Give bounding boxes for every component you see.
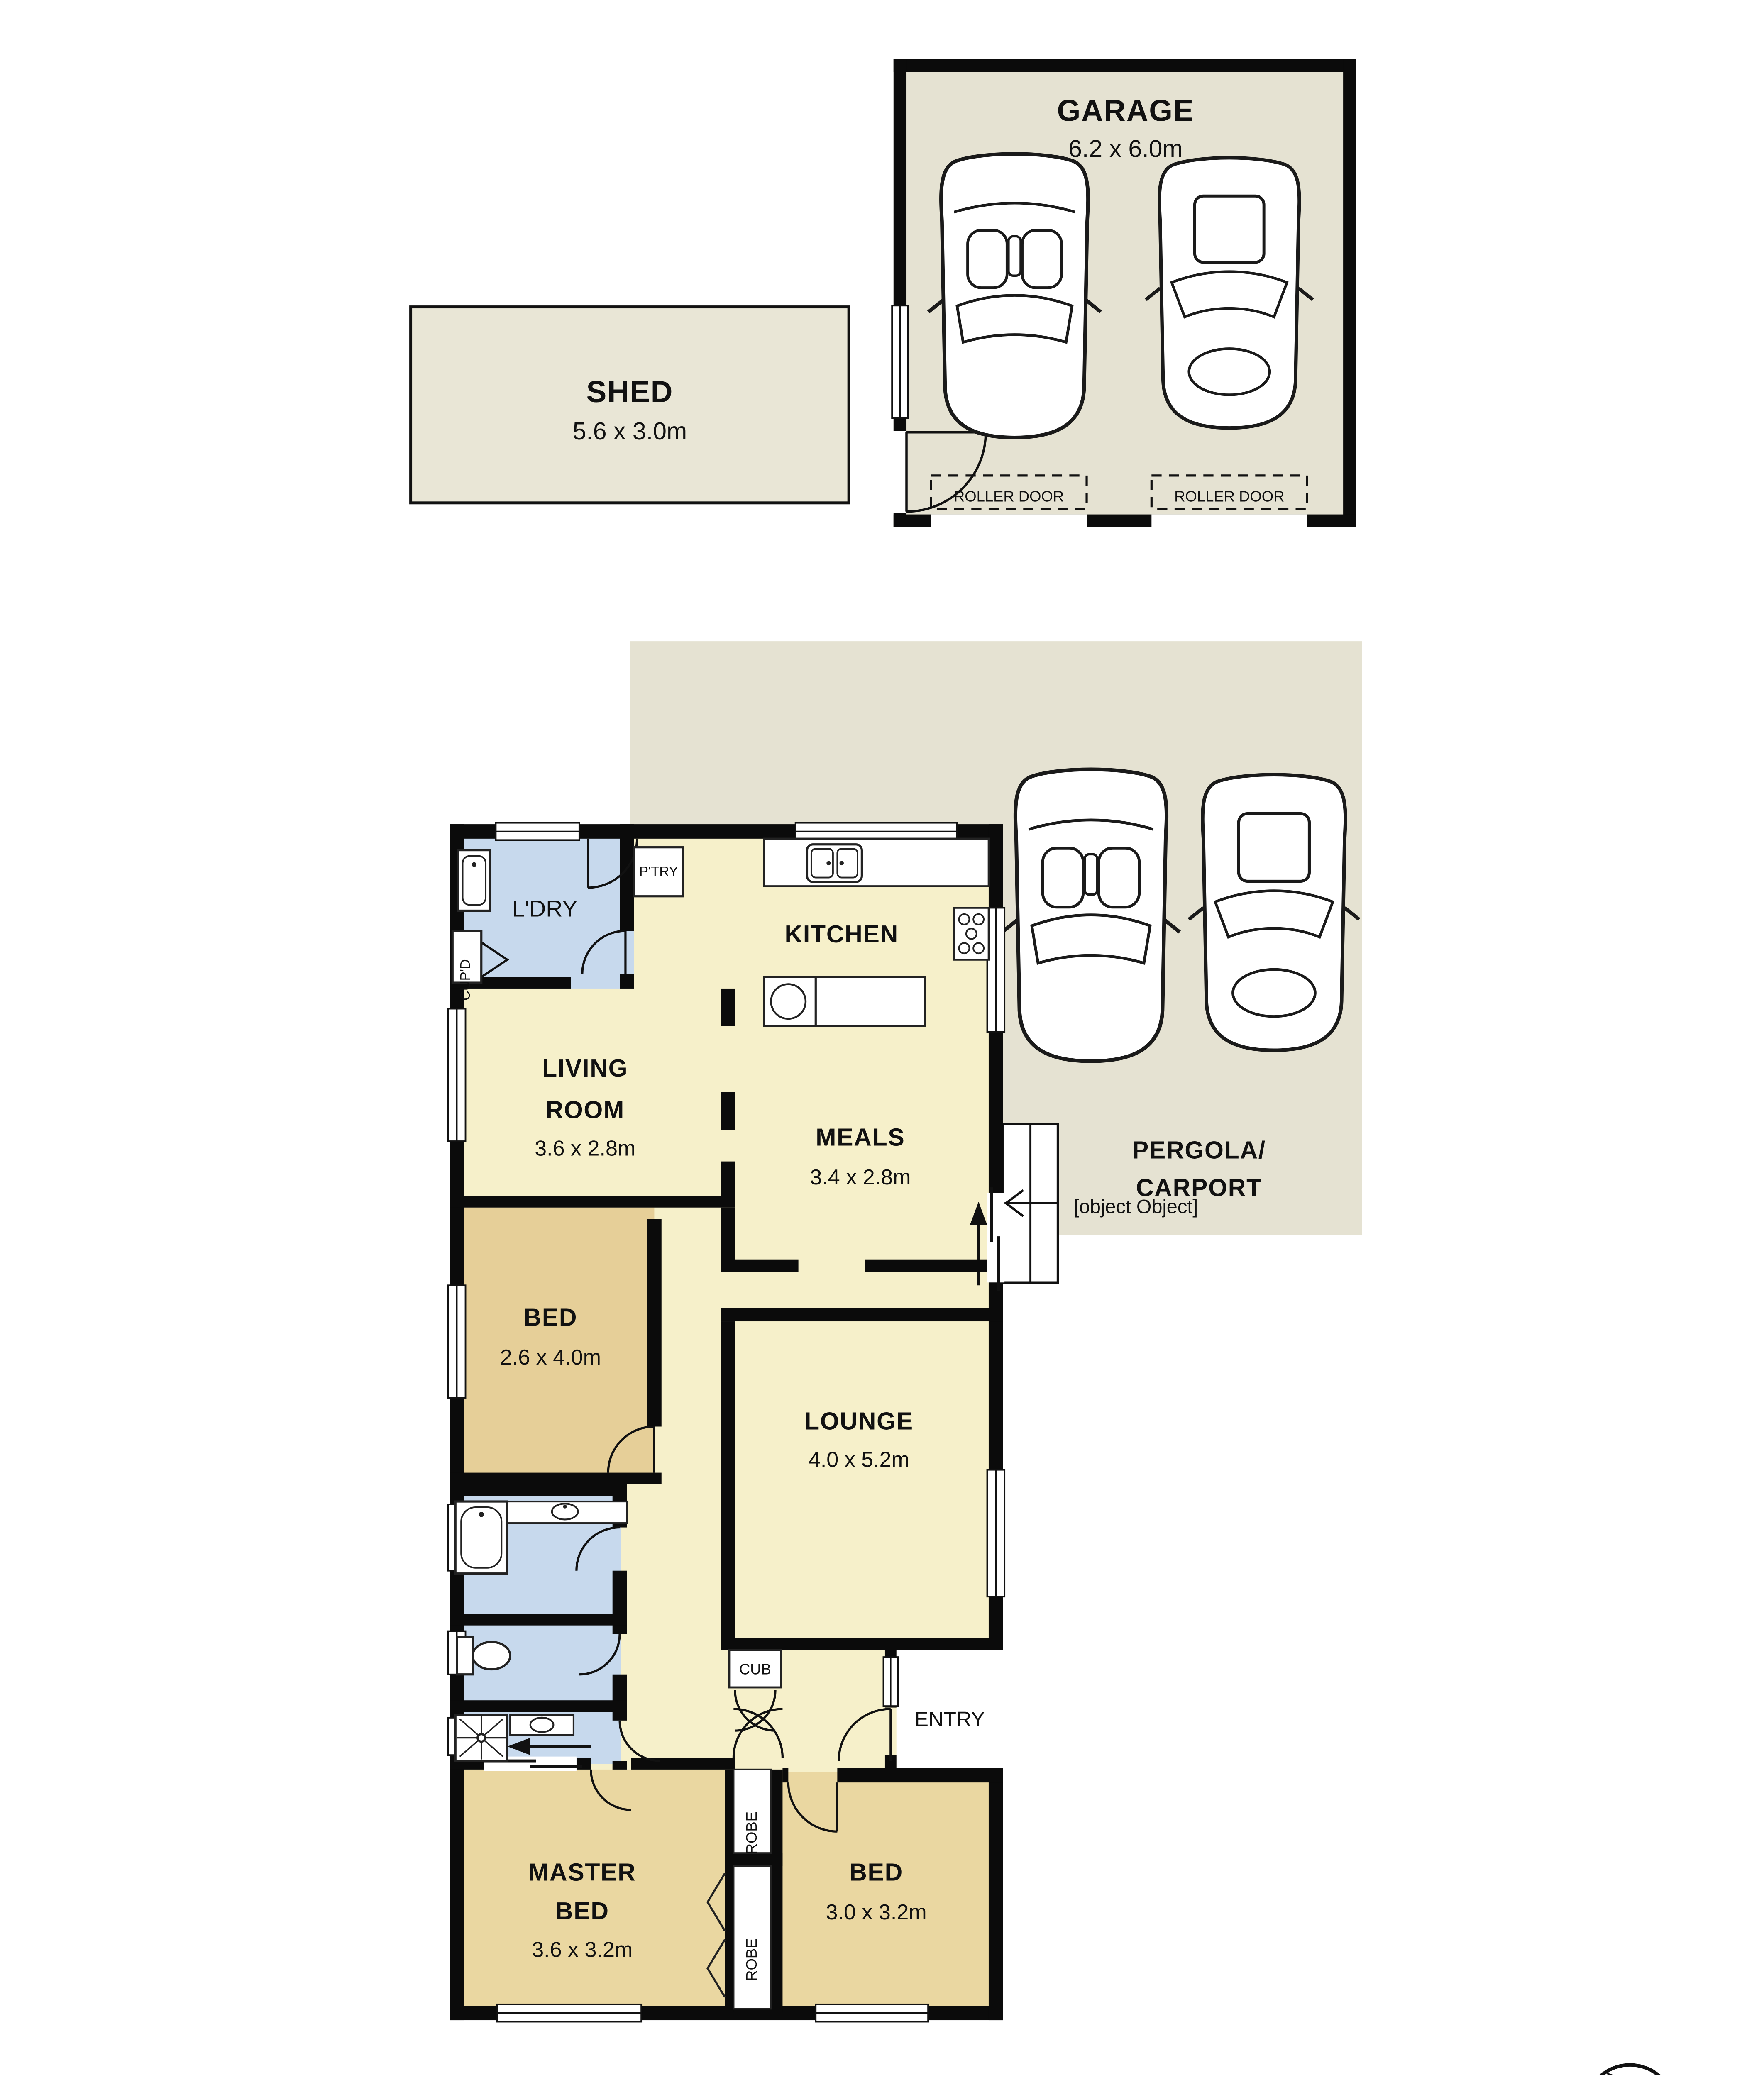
roller-opening-right <box>1151 515 1307 527</box>
garage-window <box>892 305 908 418</box>
garage-label: GARAGE <box>1057 94 1194 128</box>
meals-dims: 3.4 x 2.8m <box>810 1165 911 1189</box>
living-label-1: LIVING <box>542 1055 628 1082</box>
garage-car-sedan <box>1146 158 1313 428</box>
cupboard-label: CUP'D <box>457 959 473 1001</box>
cub-label: CUB <box>739 1661 771 1678</box>
cooktop-icon <box>954 908 989 960</box>
roller-door-right-label: ROLLER DOOR <box>1174 488 1284 505</box>
living-label-2: ROOM <box>545 1096 625 1123</box>
master-label-2: BED <box>555 1897 609 1925</box>
roller-opening-left <box>931 515 1087 527</box>
robe-bottom-label: ROBE <box>743 1938 760 1981</box>
kitchen-counter-bottom-icon <box>764 977 925 1026</box>
bathtub-icon <box>455 1501 507 1574</box>
pantry-label: P'TRY <box>639 864 678 879</box>
garage-dims: 6.2 x 6.0m <box>1068 135 1183 162</box>
shed-dims: 5.6 x 3.0m <box>573 417 687 445</box>
master-label-1: MASTER <box>528 1858 636 1886</box>
up-label: [object Object] <box>1074 1196 1198 1218</box>
entry-label: ENTRY <box>914 1707 985 1731</box>
robe-top-label: ROBE <box>743 1811 760 1854</box>
bath-vanity-icon <box>507 1501 627 1523</box>
kitchen-counter-top-icon <box>764 839 989 886</box>
floor-master <box>455 1770 729 2012</box>
floor-bed3 <box>778 1772 994 2012</box>
north-arrow-icon: N <box>1573 2065 1674 2075</box>
bed3-dims: 3.0 x 3.2m <box>826 1900 927 1924</box>
garage-car-convertible <box>928 154 1101 438</box>
ensuite-vanity-icon <box>510 1715 574 1735</box>
robe-bottom-box <box>733 1866 771 2009</box>
bed3-label: BED <box>849 1858 903 1886</box>
laundry-trough-icon <box>458 850 490 911</box>
meals-label: MEALS <box>816 1123 905 1151</box>
shower-icon <box>455 1715 507 1761</box>
lounge-label: LOUNGE <box>804 1407 914 1435</box>
pergola-car-sedan <box>1189 775 1359 1050</box>
shed-label: SHED <box>586 375 674 409</box>
lounge-dims: 4.0 x 5.2m <box>809 1448 909 1472</box>
bed2-label: BED <box>523 1304 577 1331</box>
kitchen-label: KITCHEN <box>785 920 899 948</box>
living-dims: 3.6 x 2.8m <box>535 1137 635 1161</box>
roller-door-left-label: ROLLER DOOR <box>954 488 1064 505</box>
pergola-label-1: PERGOLA/ <box>1132 1137 1266 1164</box>
pergola-car-convertible <box>1002 769 1180 1061</box>
laundry-label: L'DRY <box>512 896 578 921</box>
bed2-dims: 2.6 x 4.0m <box>500 1345 601 1369</box>
floorplan-canvas: ROLLER DOOR ROLLER DOOR GARAGE 6.2 x 6.0… <box>0 0 1764 2075</box>
garage: ROLLER DOOR ROLLER DOOR GARAGE 6.2 x 6.0… <box>892 59 1356 527</box>
master-dims: 3.6 x 3.2m <box>532 1938 633 1962</box>
